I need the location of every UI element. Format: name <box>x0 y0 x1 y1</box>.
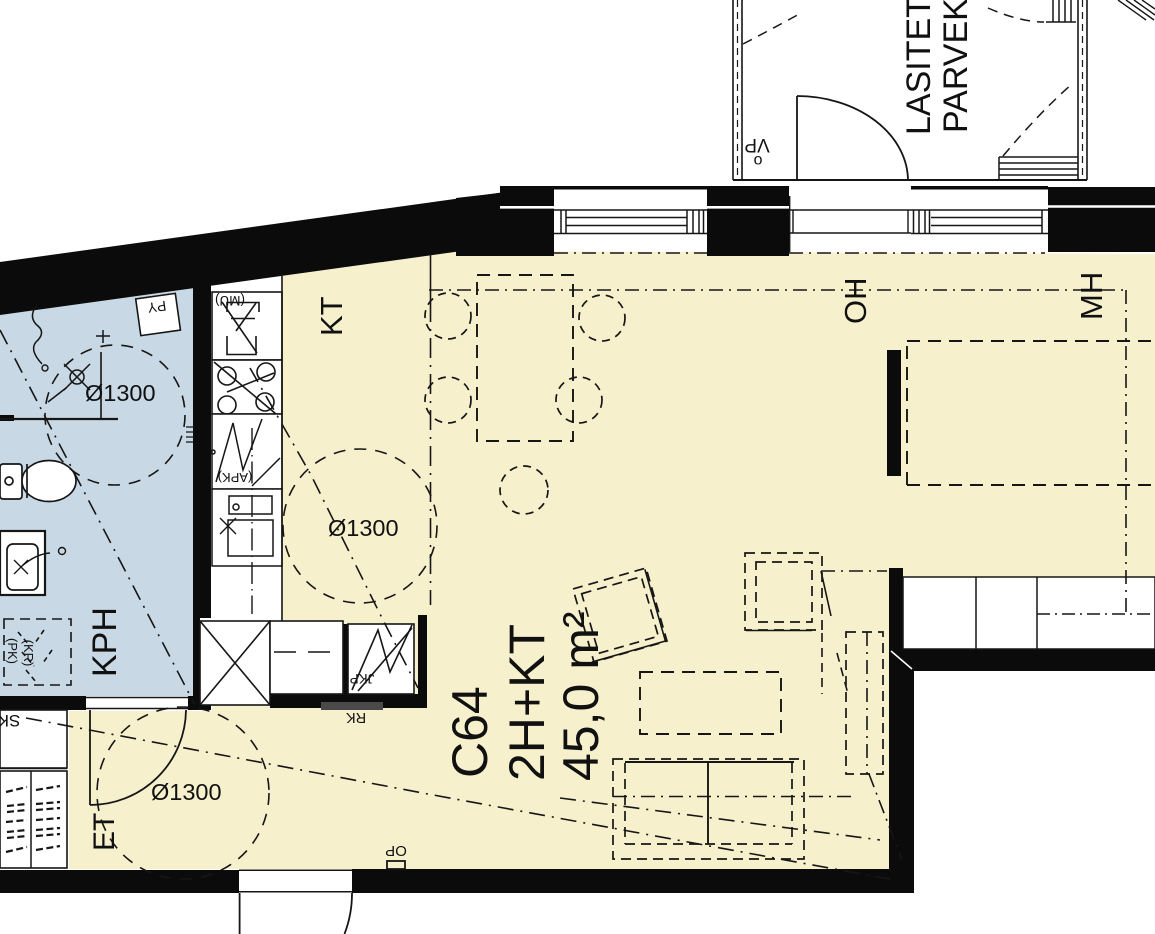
svg-text:2H+KT: 2H+KT <box>499 624 555 781</box>
svg-text:ET: ET <box>88 813 121 851</box>
svg-text:MH: MH <box>1074 272 1109 320</box>
svg-text:(MU): (MU) <box>215 293 245 308</box>
svg-text:45,0 m²: 45,0 m² <box>553 611 609 781</box>
svg-text:(KR): (KR) <box>21 640 36 667</box>
svg-text:Ø1300: Ø1300 <box>328 515 399 541</box>
svg-text:KT: KT <box>314 296 349 336</box>
svg-text:PARVEKE: PARVEKE <box>937 0 975 133</box>
svg-text:SK: SK <box>0 711 20 730</box>
svg-text:OP: OP <box>385 842 407 859</box>
svg-text:RK: RK <box>346 709 366 725</box>
svg-text:Ø1300: Ø1300 <box>151 779 222 805</box>
svg-text:VP: VP <box>744 134 769 155</box>
svg-text:Ø1300: Ø1300 <box>85 380 156 406</box>
svg-text:KPH: KPH <box>86 607 124 677</box>
svg-text:OH: OH <box>838 278 873 325</box>
svg-text:JKP: JKP <box>350 671 375 686</box>
svg-text:C64: C64 <box>442 686 498 778</box>
svg-text:LASITETTU: LASITETTU <box>900 0 938 135</box>
svg-text:o: o <box>753 152 762 169</box>
svg-text:(APK): (APK) <box>218 470 253 485</box>
svg-text:PY: PY <box>146 298 167 317</box>
svg-text:(PK): (PK) <box>5 638 20 664</box>
